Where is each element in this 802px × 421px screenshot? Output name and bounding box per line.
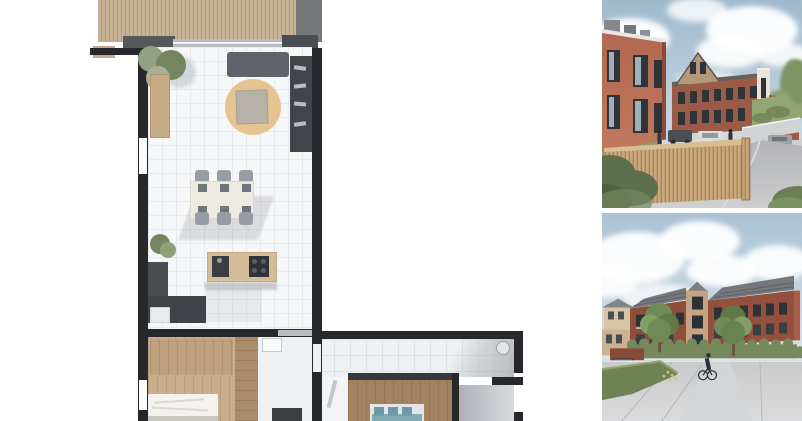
wall-extension-top — [318, 331, 523, 339]
person — [658, 130, 662, 144]
plant-small — [160, 242, 176, 258]
door-gap-right — [313, 344, 321, 372]
photo-courtyard-view[interactable] — [602, 213, 802, 421]
burner — [252, 259, 257, 264]
wall-bedroom2-right — [452, 373, 459, 421]
tower-windows — [692, 297, 703, 345]
wall-block-br — [514, 412, 523, 421]
wardrobe-strip — [235, 337, 258, 421]
media-montage — [0, 0, 802, 421]
dining-chair — [239, 212, 253, 225]
burner — [261, 268, 266, 273]
appliance — [150, 307, 170, 323]
sofa — [227, 52, 289, 77]
dining-chair — [217, 212, 231, 225]
counter-shadow — [206, 288, 262, 322]
sliding-door — [173, 39, 283, 47]
hall-door — [262, 338, 282, 352]
hall-cabinet — [272, 408, 302, 421]
window-left-1 — [139, 136, 147, 176]
basin — [496, 341, 510, 355]
bed1-foot — [148, 416, 218, 421]
burner — [252, 268, 257, 273]
bathroom-floor — [459, 385, 514, 421]
dining-chair — [195, 212, 209, 225]
wall-extension-right — [514, 339, 523, 373]
street-view-render — [602, 0, 802, 208]
bedroom1-wardrobe — [150, 339, 233, 375]
bush — [766, 106, 790, 118]
chair-seat — [220, 184, 229, 192]
bed2-blanket — [372, 414, 422, 421]
opening-hall — [278, 330, 312, 336]
chair-seat — [198, 184, 207, 192]
courtyard-render — [602, 213, 802, 421]
wall-stub-left — [90, 48, 138, 55]
wardrobe-trim — [348, 373, 452, 380]
chair-seat — [242, 184, 251, 192]
wall-left — [138, 48, 148, 421]
sideboard — [150, 74, 170, 138]
faucet — [217, 258, 222, 263]
coffee-table — [235, 89, 268, 124]
window-left-2 — [139, 378, 147, 412]
burner — [261, 259, 266, 264]
floorplan-image[interactable] — [0, 0, 602, 421]
photo-street-view[interactable] — [602, 0, 802, 208]
wall-stub-bath — [492, 377, 523, 385]
building-left — [602, 20, 666, 160]
